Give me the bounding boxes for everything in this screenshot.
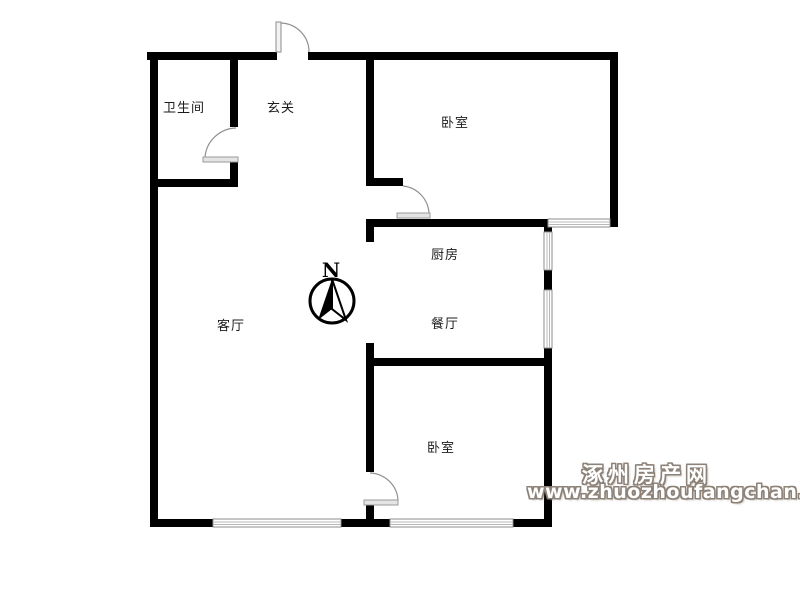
room-label-dining: 餐厅 [431,318,459,332]
window [213,519,341,527]
wall-segment [341,519,390,527]
wall-segment [366,358,374,472]
wall-segment [610,52,618,227]
room-label-living: 客厅 [217,320,245,334]
wall-segment [150,179,238,187]
room-label-bedroom-top: 卧室 [441,117,469,131]
watermark-site-url: www.zhuozhoufangchan.com [527,481,800,503]
door-leaf [203,157,238,162]
room-label-entry-hall: 玄关 [267,102,295,116]
wall-segment [147,52,277,60]
door-leaf [397,213,430,218]
wall-segment [366,219,374,242]
wall-segment [544,270,552,290]
door-leaf [364,500,398,505]
door-swing-arc [403,186,429,213]
wall-segment [308,52,618,60]
wall-segment [366,52,374,185]
window [544,232,552,270]
door-swing-arc [281,23,309,52]
wall-segment [230,52,238,127]
door-swing-arc [370,473,398,500]
wall-segment [150,519,213,527]
window [544,290,552,348]
window [390,519,513,527]
door-swing-arc [205,128,236,157]
floorplan-canvas: N 卫生间 玄关 卧室 厨房 餐厅 客厅 卧室 涿州房产网 www.zhuozh… [0,0,800,600]
wall-segment [366,505,374,527]
compass-needle-left [318,279,332,320]
floorplan-drawing: N [0,0,800,600]
wall-segment [366,358,552,366]
room-label-bedroom-bottom: 卧室 [427,442,455,456]
door-leaf [276,22,281,52]
room-label-kitchen: 厨房 [431,249,459,263]
window [548,219,610,227]
compass-icon: N [310,258,354,323]
wall-segment [366,178,403,186]
wall-segment [366,219,548,227]
room-label-bathroom: 卫生间 [163,102,205,116]
compass-needle-right [332,279,346,320]
wall-segment [150,52,158,527]
